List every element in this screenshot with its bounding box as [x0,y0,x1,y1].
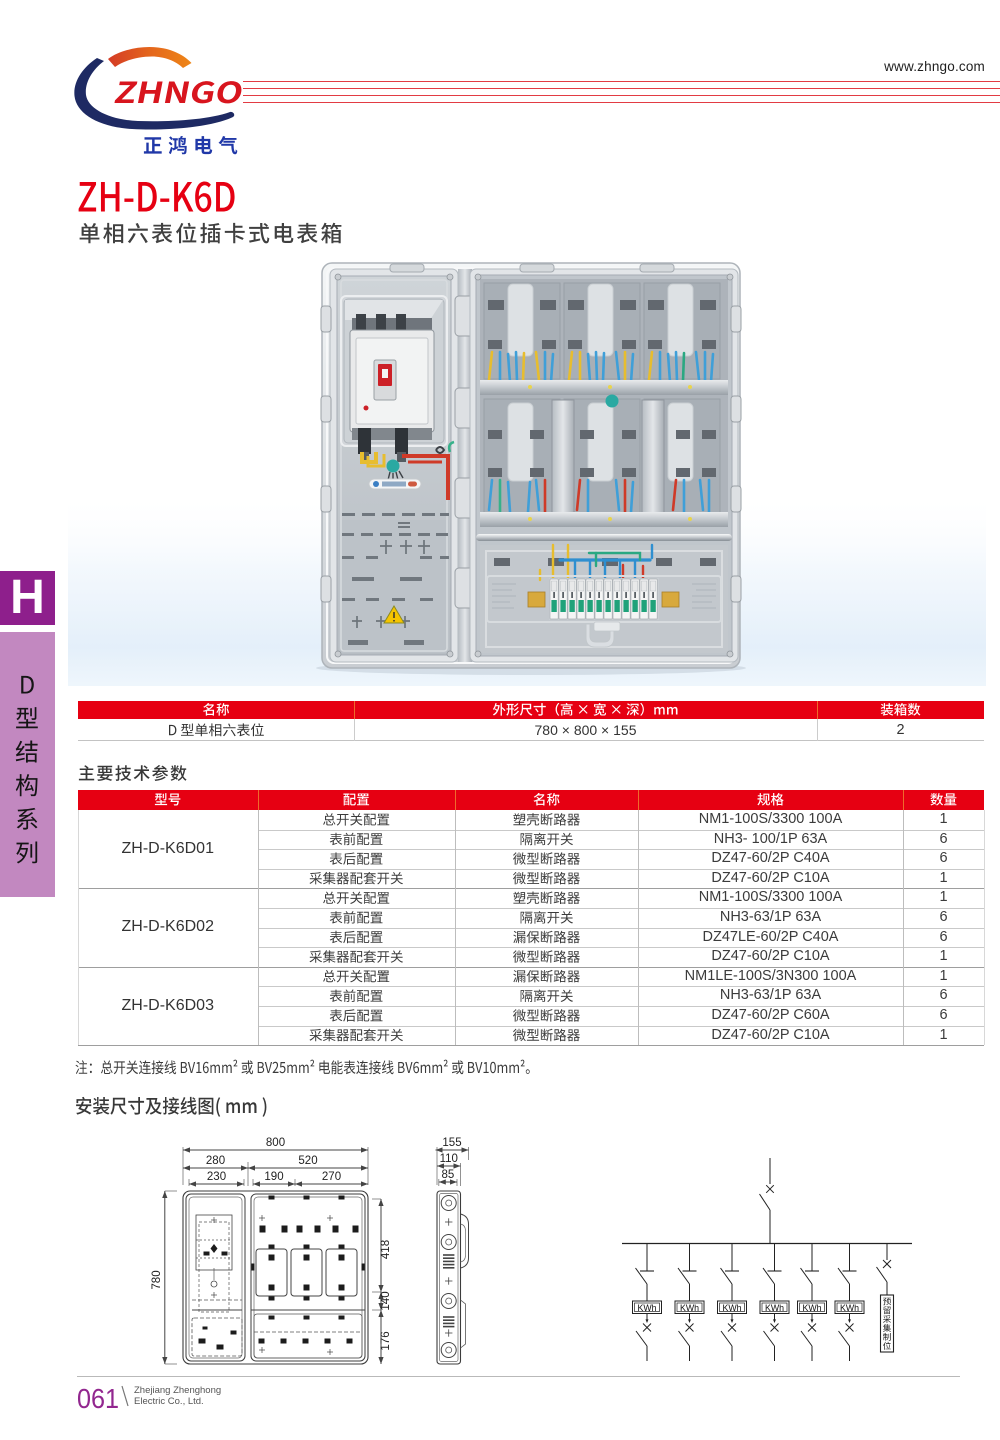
svg-text:110: 110 [440,1153,458,1165]
svg-text:KWh: KWh [765,1303,784,1313]
svg-text:800: 800 [266,1137,285,1149]
svg-text:140: 140 [380,1291,392,1310]
svg-text:155: 155 [442,1137,461,1149]
svg-text:190: 190 [264,1171,283,1183]
svg-text:780: 780 [151,1270,163,1289]
svg-text:KWh: KWh [722,1303,741,1313]
svg-text:KWh: KWh [840,1303,859,1313]
svg-text:280: 280 [206,1155,225,1167]
svg-text:520: 520 [298,1155,317,1167]
svg-text:KWh: KWh [680,1303,699,1313]
svg-text:KWh: KWh [802,1303,821,1313]
svg-text:KWh: KWh [637,1303,656,1313]
svg-text:85: 85 [442,1169,455,1181]
svg-text:230: 230 [207,1171,226,1183]
svg-text:270: 270 [322,1171,341,1183]
svg-text:418: 418 [380,1240,392,1259]
svg-text:176: 176 [380,1331,392,1350]
